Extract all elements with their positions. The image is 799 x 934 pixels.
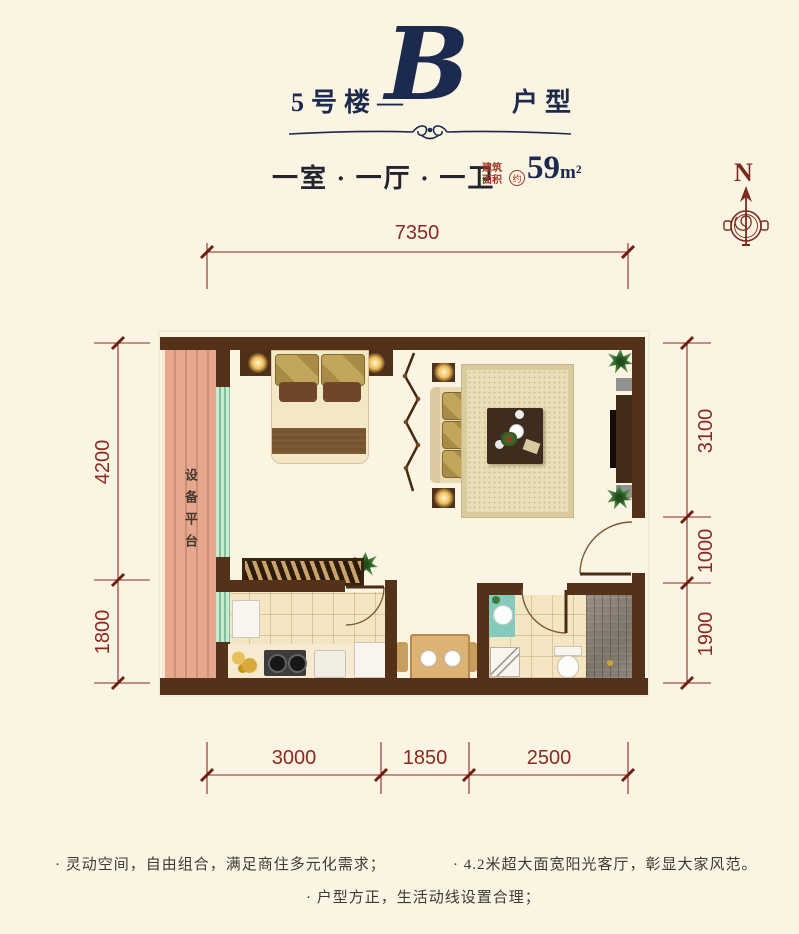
dim-label-left-1800: 1800 xyxy=(92,587,114,677)
dim-label-right-3100: 3100 xyxy=(695,386,717,476)
dim-label-right-1000: 1000 xyxy=(695,506,717,596)
feature-left: · 灵动空间，自由组合，满足商住多元化需求； xyxy=(55,853,386,874)
dim-label-bottom-3000: 3000 xyxy=(234,747,354,769)
feature-center: · 户型方正，生活动线设置合理； xyxy=(306,886,541,907)
dim-label-bottom-2500: 2500 xyxy=(489,747,609,769)
doors-and-divider xyxy=(160,332,648,695)
dim-label-left-4200: 4200 xyxy=(92,417,114,507)
floor-plan: 设备平台 xyxy=(160,332,648,695)
feature-right: · 4.2米超大面宽阳光客厅，彰显大家风范。 xyxy=(453,853,758,874)
floor-plan-page: { "title": { "building": "5号楼—", "letter… xyxy=(0,0,799,934)
dim-label-bottom-1850: 1850 xyxy=(365,747,485,769)
dim-label-top: 7350 xyxy=(357,222,477,244)
dim-label-right-1900: 1900 xyxy=(695,589,717,679)
